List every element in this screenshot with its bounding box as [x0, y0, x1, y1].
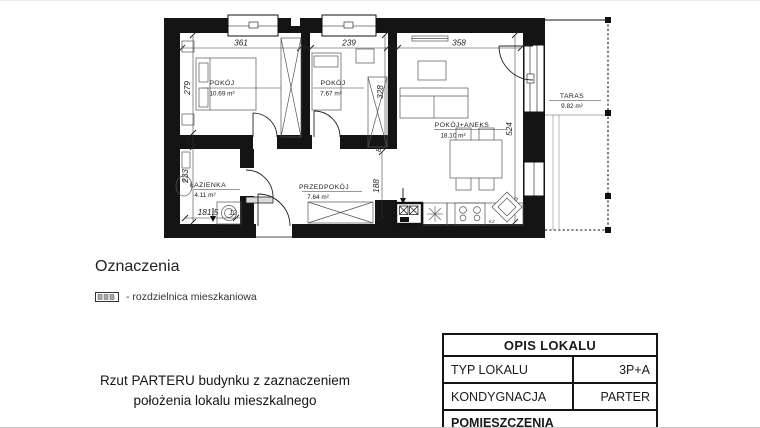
sofa	[400, 88, 468, 118]
svg-text:18.10 m²: 18.10 m²	[440, 133, 465, 140]
distribution-board	[396, 188, 422, 224]
dim-room2-right: 328	[375, 85, 385, 99]
desk-room2	[356, 49, 374, 63]
table-footer: POMIESZCZENIA	[444, 411, 656, 428]
corner-sink	[492, 192, 522, 222]
dim-living-right: 524	[504, 122, 514, 136]
legend: Oznaczenia - rozdzielnica mieszkaniowa	[95, 258, 257, 303]
dim-bath-1: 181.5	[198, 207, 219, 217]
dim-top-3: 239	[341, 38, 356, 48]
dim-top-1: 361	[234, 38, 248, 48]
dim-left-1: 279	[182, 81, 192, 96]
door-room2	[314, 111, 340, 137]
svg-text:ŁAZIENKA: ŁAZIENKA	[190, 182, 226, 189]
row-value-kondygnacja: PARTER	[572, 384, 656, 409]
plan-caption: Rzut PARTERU budynku z zaznaczeniem poło…	[58, 371, 392, 410]
door-room1	[253, 113, 277, 137]
caption-line-2: położenia lokalu mieszkalnego	[58, 391, 392, 411]
terrace-boundary	[545, 17, 611, 233]
window-room2	[322, 15, 376, 36]
svg-text:TARAS: TARAS	[560, 93, 584, 100]
dim-top-2: 8	[303, 41, 307, 48]
tv-shelf	[412, 36, 448, 41]
dim-room2-right-2: 8	[376, 148, 383, 152]
table-header: OPIS LOKALU	[444, 335, 656, 357]
distribution-board-icon	[95, 292, 119, 302]
caption-line-1: Rzut PARTERU budynku z zaznaczeniem	[58, 371, 392, 391]
terrace-door-window	[524, 45, 544, 112]
room-label-living: POKÓJ+ANEKS 18.10 m²	[434, 120, 506, 140]
stove	[455, 203, 485, 225]
room-label-pokoj2: POKÓJ 7.67 m²	[313, 78, 364, 98]
door-bathroom	[246, 170, 273, 203]
row-value-typ-lokalu: 3P+A	[572, 357, 656, 382]
room-label-bathroom: ŁAZIENKA 4.11 m²	[190, 182, 240, 199]
legend-item-text: - rozdzielnica mieszkaniowa	[126, 291, 257, 303]
svg-text:7.67 m²: 7.67 m²	[320, 91, 342, 98]
legend-title: Oznaczenia	[95, 258, 257, 276]
wardrobe-room1	[281, 38, 301, 137]
svg-text:POKÓJ: POKÓJ	[209, 78, 234, 87]
bath-radiator	[182, 152, 190, 168]
wall-openings	[256, 15, 300, 238]
floor-plan: 361 8 239 8 358 279 12 233 328 8 188 524…	[150, 0, 630, 250]
kitchen-appliance-label: KZ	[489, 219, 495, 224]
page: 361 8 239 8 358 279 12 233 328 8 188 524…	[0, 0, 760, 428]
svg-text:POKÓJ: POKÓJ	[320, 78, 345, 87]
row-label-typ-lokalu: TYP LOKALU	[444, 357, 572, 382]
room-label-terrace: TARAS 9.82 m²	[549, 93, 601, 110]
unit-description-table: OPIS LOKALU TYP LOKALU 3P+A KONDYGNACJA …	[442, 333, 658, 428]
room-label-hall: PRZEDPOKÓJ 7.64 m²	[299, 182, 362, 201]
svg-text:9.82 m²: 9.82 m²	[561, 103, 583, 110]
room-label-pokoj1: POKÓJ 10.69 m²	[203, 78, 281, 98]
svg-text:10.69 m²: 10.69 m²	[209, 91, 234, 98]
row-label-kondygnacja: KONDYGNACJA	[444, 384, 572, 409]
window-kitchen	[524, 162, 544, 196]
window-room1	[228, 15, 278, 36]
dim-top-5: 358	[452, 38, 466, 48]
svg-text:PRZEDPOKÓJ: PRZEDPOKÓJ	[299, 182, 349, 191]
table-row: KONDYGNACJA PARTER	[444, 384, 656, 411]
legend-row: - rozdzielnica mieszkaniowa	[95, 291, 257, 303]
furniture	[176, 36, 523, 225]
hall-wardrobe	[308, 202, 373, 223]
svg-text:7.64 m²: 7.64 m²	[307, 194, 329, 201]
nightstand-2	[182, 114, 194, 125]
dim-hall-right: 188	[371, 179, 381, 193]
table-row: TYP LOKALU 3P+A	[444, 357, 656, 384]
dim-top-4: 8	[391, 41, 395, 48]
dim-left-2: 12	[185, 137, 192, 145]
svg-text:4.11 m²: 4.11 m²	[194, 192, 215, 199]
coffee-table	[418, 61, 446, 80]
fridge-icon	[423, 203, 447, 225]
